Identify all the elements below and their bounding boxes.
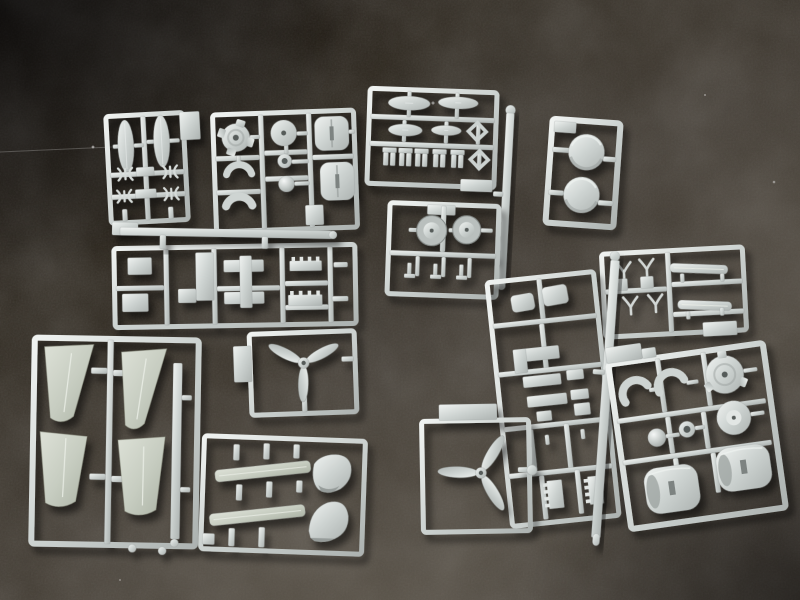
- photo-frame: [0, 0, 800, 600]
- model-kit-sprues-photo: [0, 0, 800, 600]
